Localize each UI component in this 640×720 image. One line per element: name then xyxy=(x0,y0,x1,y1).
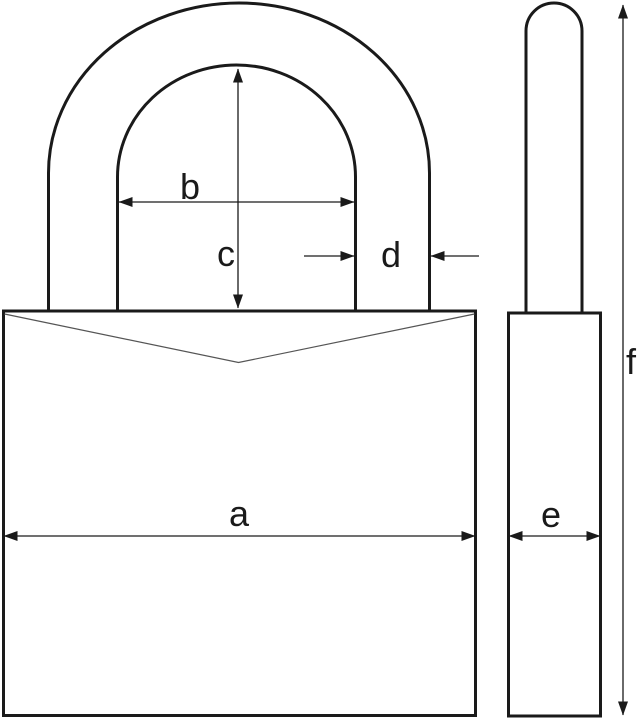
shackle-outer-outline xyxy=(49,3,430,311)
dimension-b-label: b xyxy=(180,166,200,207)
dimension-f: f xyxy=(623,5,637,715)
dimension-c-label: c xyxy=(217,233,235,274)
dimension-f-label: f xyxy=(626,341,637,382)
dimension-a-label: a xyxy=(229,493,250,534)
dimension-d: d xyxy=(304,234,479,275)
technical-drawing-canvas: a b c d e f xyxy=(0,0,640,720)
front-view xyxy=(4,3,476,716)
dimension-b: b xyxy=(119,166,354,207)
dimension-d-label: d xyxy=(381,234,401,275)
padlock-dimension-diagram: a b c d e f xyxy=(0,0,640,720)
side-view xyxy=(509,3,601,716)
dimension-e-label: e xyxy=(541,494,561,535)
shackle-inner-outline xyxy=(118,65,356,311)
dimension-c: c xyxy=(217,69,238,308)
side-shackle-outline xyxy=(526,3,582,313)
